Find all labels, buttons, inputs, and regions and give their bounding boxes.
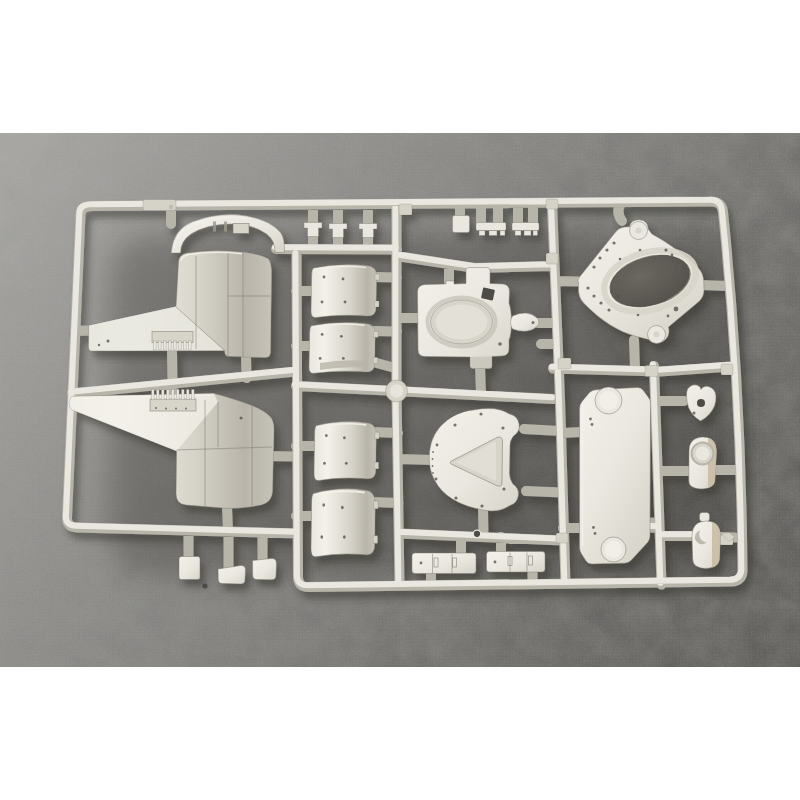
curved-hull-panel-1: [311, 264, 380, 317]
gate-junction-disc: [386, 380, 408, 402]
octagonal-hull-plate: [580, 387, 651, 564]
hinge-bracket-2: [487, 552, 546, 573]
toothed-rack: [150, 390, 196, 412]
small-fairing: [511, 313, 540, 331]
curved-hull-panel-3: [314, 422, 379, 481]
hinge-bracket-1: [412, 553, 476, 574]
photo-stage: [0, 0, 800, 800]
centre-hole: [697, 399, 705, 407]
letterbox-bottom: [0, 667, 800, 800]
debris-spot: [202, 583, 207, 588]
letterbox-top: [0, 0, 800, 133]
photo-page: { "scene": { "type": "product photo", "s…: [0, 0, 800, 800]
sprue-photo: [0, 0, 800, 800]
small-t-clips: [304, 223, 377, 238]
curved-hull-panel-4: [311, 489, 378, 557]
cup-housing-round-recess: [689, 437, 717, 489]
